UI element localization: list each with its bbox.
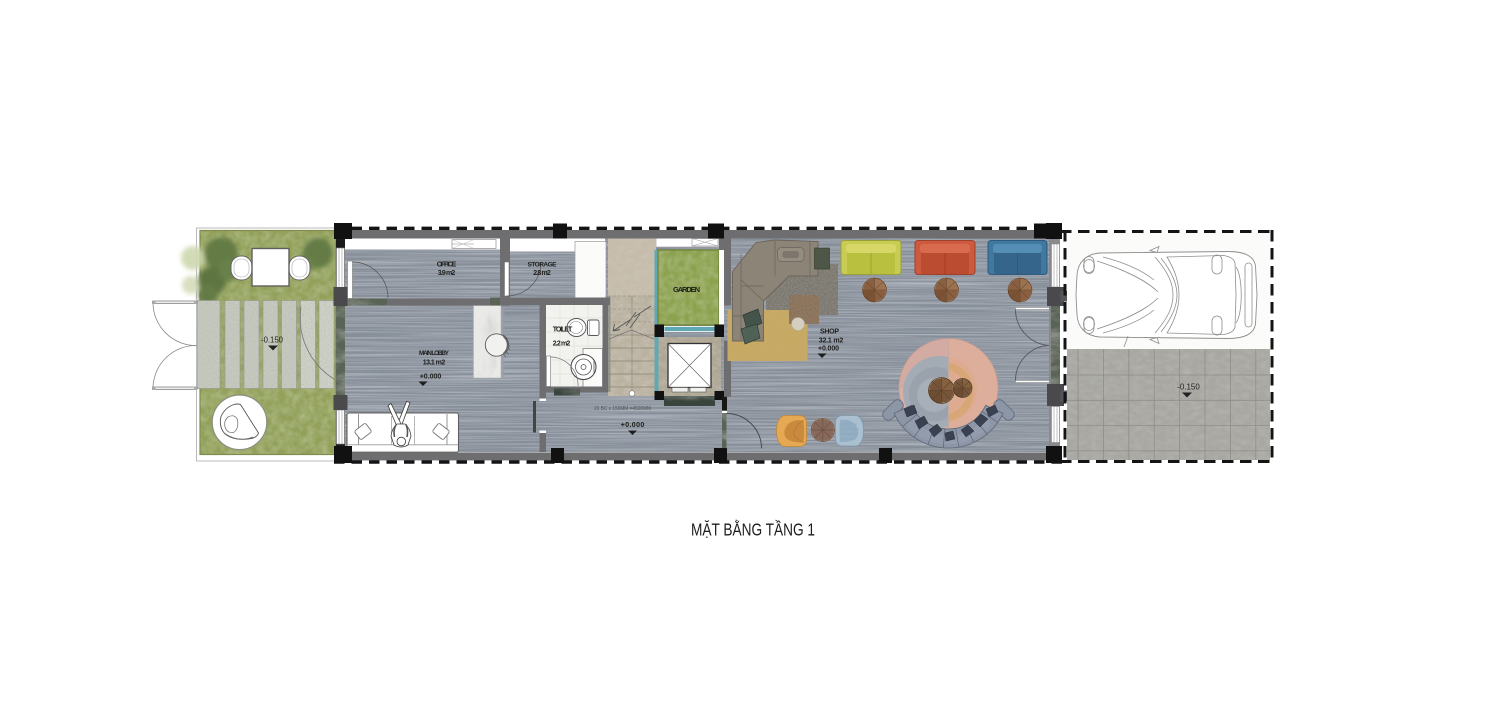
svg-text:MAIN LOBBY: MAIN LOBBY <box>419 350 450 357</box>
svg-text:13.1 m2: 13.1 m2 <box>423 360 446 367</box>
svg-text:-0.150: -0.150 <box>1177 383 1200 392</box>
svg-text:+0.000: +0.000 <box>818 346 839 353</box>
svg-text:SHOP: SHOP <box>820 329 839 336</box>
svg-text:OFFICE: OFFICE <box>437 262 457 269</box>
svg-text:3.9 m2: 3.9 m2 <box>438 270 456 277</box>
svg-text:GARDEN: GARDEN <box>673 285 700 294</box>
svg-text:TOILET: TOILET <box>553 327 573 334</box>
svg-text:-0.150: -0.150 <box>261 336 284 345</box>
svg-text:+0.000: +0.000 <box>420 374 442 381</box>
svg-text:STORAGE: STORAGE <box>528 262 558 269</box>
svg-text:20 BC x 150MM =4500MM: 20 BC x 150MM =4500MM <box>594 406 651 412</box>
svg-text:MẶT BẰNG TẦNG 1: MẶT BẰNG TẦNG 1 <box>691 519 815 540</box>
svg-text:32.1 m2: 32.1 m2 <box>819 338 844 345</box>
svg-text:2.2 m2: 2.2 m2 <box>553 341 571 348</box>
svg-text:+0.000: +0.000 <box>621 422 645 429</box>
svg-text:2.8 m2: 2.8 m2 <box>533 270 551 277</box>
